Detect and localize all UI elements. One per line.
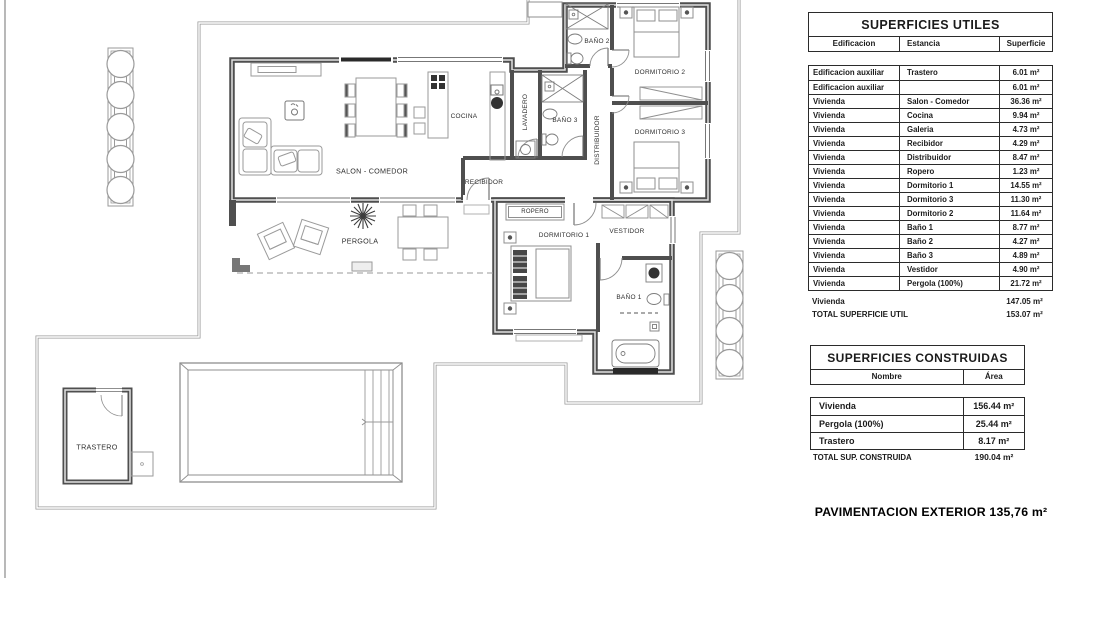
- cell-edificacion: Edificacion auxiliar: [809, 66, 899, 80]
- table-row: ViviendaCocina9.94 m²: [809, 108, 1052, 122]
- cell-estancia: Salon - Comedor: [899, 95, 999, 108]
- table-row: Edificacion auxiliarTrastero6.01 m²: [809, 66, 1052, 80]
- cell-estancia: Cocina: [899, 109, 999, 122]
- bathroom1-fixtures: [612, 264, 669, 367]
- cell-superficie: 8.47 m²: [999, 151, 1052, 164]
- cell-edificacion: Vivienda: [809, 277, 899, 290]
- outdoor-table: [398, 205, 448, 260]
- cell-superficie: 4.89 m²: [999, 249, 1052, 262]
- cell-superficie: 14.55 m²: [999, 179, 1052, 192]
- subtotal-label: Vivienda: [808, 295, 998, 308]
- utiles-data-box: Edificacion auxiliarTrastero6.01 m² Edif…: [808, 65, 1053, 291]
- cell-superficie: 6.01 m²: [999, 66, 1052, 80]
- bathroom2-fixtures: [566, 4, 608, 64]
- subtotal-row: Vivienda 147.05 m²: [808, 295, 1053, 308]
- cell-superficie: 9.94 m²: [999, 109, 1052, 122]
- floor-plan-sheet: { "plan": { "rooms": { "salon": "SALON -…: [0, 0, 1110, 626]
- table-row: ViviendaGaleria4.73 m²: [809, 122, 1052, 136]
- cell-estancia: Vestidor: [899, 263, 999, 276]
- salon-furniture: [239, 63, 407, 175]
- cell-edificacion: Vivienda: [809, 165, 899, 178]
- kitchen-sink: [491, 97, 503, 109]
- table-row: ViviendaBaño 34.89 m²: [809, 248, 1052, 262]
- bed: [634, 142, 679, 192]
- cell-superficie: 21.72 m²: [999, 277, 1052, 290]
- cell-estancia: Baño 1: [899, 221, 999, 234]
- table-row: ViviendaDormitorio 114.55 m²: [809, 178, 1052, 192]
- col-header-estancia: Estancia: [899, 37, 999, 51]
- room-label-dormitorio2: DORMITORIO 2: [635, 70, 686, 77]
- superficies-utiles-table: SUPERFICIES UTILES Edificacion Estancia …: [808, 12, 1053, 321]
- bedroom3-furniture: [620, 142, 693, 193]
- cell-estancia: Dormitorio 3: [899, 193, 999, 206]
- cell-nombre: Pergola (100%): [811, 416, 963, 432]
- room-label-dormitorio3: DORMITORIO 3: [635, 130, 686, 137]
- cell-edificacion: Vivienda: [809, 123, 899, 136]
- construidas-total-value: 190.04 m²: [963, 450, 1025, 465]
- cell-edificacion: Vivienda: [809, 95, 899, 108]
- cell-area: 8.17 m²: [963, 433, 1024, 449]
- table-row: Trastero8.17 m²: [811, 432, 1024, 449]
- room-label-distribuidor: DISTRIBUIDOR: [595, 115, 602, 165]
- col-header-superficie: Superficie: [999, 37, 1052, 51]
- cell-estancia: Galeria: [899, 123, 999, 136]
- cell-edificacion: Vivienda: [809, 263, 899, 276]
- pavement-boundary: [37, 0, 739, 508]
- cell-superficie: 4.29 m²: [999, 137, 1052, 150]
- construidas-total-label: TOTAL SUP. CONSTRUIDA: [810, 450, 963, 465]
- cell-superficie: 4.90 m²: [999, 263, 1052, 276]
- construidas-total-row: TOTAL SUP. CONSTRUIDA 190.04 m²: [810, 450, 1025, 465]
- cell-estancia: [899, 81, 999, 94]
- tv-sideboard: [251, 63, 321, 76]
- cell-edificacion: Vivienda: [809, 193, 899, 206]
- room-label-banyo1: BAÑO 1: [616, 295, 641, 302]
- table-row: ViviendaDormitorio 211.64 m²: [809, 206, 1052, 220]
- cell-estancia: Dormitorio 1: [899, 179, 999, 192]
- room-label-banyo2: BAÑO 2: [584, 39, 609, 46]
- cell-estancia: Baño 2: [899, 235, 999, 248]
- table-row: ViviendaSalon - Comedor36.36 m²: [809, 94, 1052, 108]
- vestidor-closets: [602, 205, 668, 218]
- cell-edificacion: Vivienda: [809, 137, 899, 150]
- table-row: ViviendaVestidor4.90 m²: [809, 262, 1052, 276]
- utiles-title-box: SUPERFICIES UTILES Edificacion Estancia …: [808, 12, 1053, 52]
- pavimentacion-exterior-text: PAVIMENTACION EXTERIOR 135,76 m²: [808, 505, 1054, 519]
- construidas-data-box: Vivienda156.44 m² Pergola (100%)25.44 m²…: [810, 397, 1025, 450]
- cell-estancia: Distribuidor: [899, 151, 999, 164]
- col-header-area: Área: [963, 370, 1024, 384]
- cell-nombre: Vivienda: [811, 398, 963, 415]
- room-label-lavadero: LAVADERO: [523, 94, 530, 130]
- cell-edificacion: Vivienda: [809, 221, 899, 234]
- bathroom3-fixtures: [542, 75, 583, 145]
- room-label-salon-comedor: SALON - COMEDOR: [336, 167, 408, 174]
- corner-sofa: [239, 118, 322, 175]
- cell-estancia: Trastero: [899, 66, 999, 80]
- room-label-ropero: ROPERO: [521, 209, 549, 215]
- subtotal-value: 147.05 m²: [998, 295, 1051, 308]
- lounge-chair: [293, 219, 328, 254]
- exterior-unit: [528, 2, 562, 17]
- cell-estancia: Baño 3: [899, 249, 999, 262]
- cell-area: 25.44 m²: [963, 416, 1024, 432]
- cell-superficie: 11.64 m²: [999, 207, 1052, 220]
- table-row: ViviendaRecibidor4.29 m²: [809, 136, 1052, 150]
- cell-superficie: 8.77 m²: [999, 221, 1052, 234]
- pergola-column: [232, 258, 250, 272]
- total-label: TOTAL SUPERFICIE UTIL: [808, 308, 998, 321]
- room-label-pergola: PERGOLA: [342, 237, 379, 244]
- tree-row-right: [716, 251, 743, 379]
- laundry-appliance: [516, 141, 535, 158]
- step: [352, 262, 372, 271]
- bedroom1-furniture: [504, 232, 582, 341]
- superficies-construidas-table: SUPERFICIES CONSTRUIDAS Nombre Área Vivi…: [810, 345, 1025, 465]
- cell-edificacion: Vivienda: [809, 207, 899, 220]
- utiles-title: SUPERFICIES UTILES: [809, 13, 1052, 36]
- door-arcs: [467, 48, 629, 280]
- sink: [649, 268, 660, 279]
- cell-estancia: Pergola (100%): [899, 277, 999, 290]
- cell-superficie: 11.30 m²: [999, 193, 1052, 206]
- total-row: TOTAL SUPERFICIE UTIL 153.07 m²: [808, 308, 1053, 321]
- swimming-pool: [180, 363, 402, 482]
- dining-table: [345, 78, 407, 137]
- room-label-trastero: TRASTERO: [76, 443, 117, 450]
- cell-area: 156.44 m²: [963, 398, 1024, 415]
- bedroom2-furniture: [620, 7, 693, 57]
- cell-estancia: Dormitorio 2: [899, 207, 999, 220]
- cell-edificacion: Vivienda: [809, 235, 899, 248]
- cell-estancia: Ropero: [899, 165, 999, 178]
- construidas-title-box: SUPERFICIES CONSTRUIDAS Nombre Área: [810, 345, 1025, 385]
- table-row: ViviendaBaño 18.77 m²: [809, 220, 1052, 234]
- utiles-header-row: Edificacion Estancia Superficie: [809, 36, 1052, 51]
- cell-superficie: 36.36 m²: [999, 95, 1052, 108]
- table-row: ViviendaDormitorio 311.30 m²: [809, 192, 1052, 206]
- cell-nombre: Trastero: [811, 433, 963, 449]
- room-label-banyo3: BAÑO 3: [552, 118, 577, 125]
- cell-edificacion: Vivienda: [809, 179, 899, 192]
- construidas-title: SUPERFICIES CONSTRUIDAS: [811, 346, 1024, 369]
- room-label-dormitorio1: DORMITORIO 1: [539, 233, 590, 240]
- table-row: ViviendaBaño 24.27 m²: [809, 234, 1052, 248]
- col-header-nombre: Nombre: [811, 370, 963, 384]
- cell-superficie: 4.27 m²: [999, 235, 1052, 248]
- col-header-edificacion: Edificacion: [809, 37, 899, 51]
- cell-estancia: Recibidor: [899, 137, 999, 150]
- total-value: 153.07 m²: [998, 308, 1051, 321]
- cell-edificacion: Vivienda: [809, 109, 899, 122]
- table-row: ViviendaRopero1.23 m²: [809, 164, 1052, 178]
- cell-edificacion: Vivienda: [809, 249, 899, 262]
- room-label-vestidor: VESTIDOR: [609, 229, 644, 236]
- cell-edificacion: Vivienda: [809, 151, 899, 164]
- cell-superficie: 4.73 m²: [999, 123, 1052, 136]
- kitchen-island: [428, 72, 448, 138]
- cell-superficie: 1.23 m²: [999, 165, 1052, 178]
- lounge-chair: [257, 222, 294, 259]
- room-label-cocina: COCINA: [451, 114, 478, 121]
- cell-superficie: 6.01 m²: [999, 81, 1052, 94]
- entry-step: [464, 205, 489, 214]
- plant: [350, 203, 376, 229]
- trastero-building: [65, 386, 153, 482]
- table-row: Edificacion auxiliar6.01 m²: [809, 80, 1052, 94]
- construidas-header-row: Nombre Área: [811, 369, 1024, 384]
- table-row: Vivienda156.44 m²: [811, 398, 1024, 415]
- tree-row-left: [107, 48, 134, 206]
- table-row: ViviendaDistribuidor8.47 m²: [809, 150, 1052, 164]
- room-label-recibidor: RECIBIDOR: [465, 180, 503, 187]
- table-row: Pergola (100%)25.44 m²: [811, 415, 1024, 432]
- table-row: ViviendaPergola (100%)21.72 m²: [809, 276, 1052, 290]
- cell-edificacion: Edificacion auxiliar: [809, 81, 899, 94]
